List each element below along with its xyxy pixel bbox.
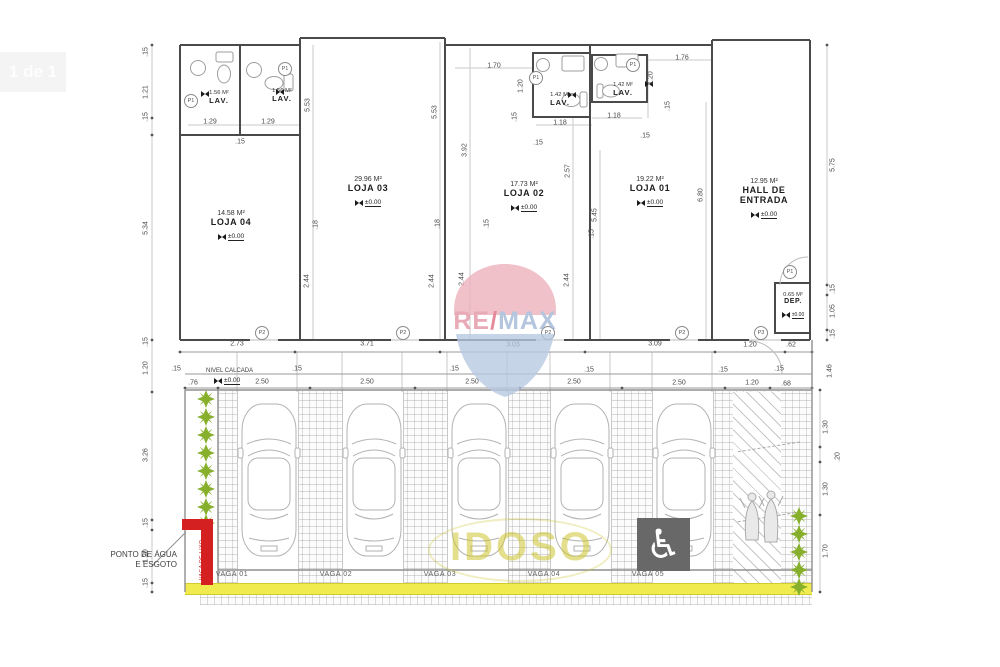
- room-label-hall: 12.95 M² HALL DE ENTRADA ±0.00: [709, 178, 819, 223]
- dim: 1.20: [648, 71, 655, 85]
- dim: 1.18: [607, 113, 621, 120]
- dim: .15: [143, 578, 150, 588]
- dim: .18: [435, 219, 442, 229]
- dim: .15: [143, 337, 150, 347]
- room-name: DEP.: [773, 298, 813, 305]
- room-label-loja01: 19.22 M² LOJA 01 ±0.00: [595, 176, 705, 211]
- dim: 1.70: [487, 63, 501, 70]
- dim: 2.50: [255, 379, 269, 386]
- dim: 2.50: [360, 379, 374, 386]
- vaga-label: VAGA 03: [424, 571, 456, 578]
- room-area: 12.95 M²: [709, 178, 819, 185]
- dim: 1.20: [143, 361, 150, 375]
- lav-name: LAV.: [530, 98, 590, 107]
- room-name: LOJA 02: [469, 188, 579, 198]
- dim: .15: [533, 140, 543, 147]
- dim: .15: [718, 367, 728, 374]
- level-marker-icon: [214, 378, 222, 384]
- level-value: ±0.00: [792, 312, 804, 319]
- level-value: ±0.00: [228, 233, 244, 241]
- dim: .20: [835, 452, 842, 462]
- dim: 1.30: [823, 420, 830, 434]
- dim: .15: [584, 367, 594, 374]
- dim: 1.30: [823, 482, 830, 496]
- dim: 1.70: [823, 544, 830, 558]
- idoso-watermark: IDOSO: [450, 525, 594, 570]
- dim: 1.76: [675, 55, 689, 62]
- lav-name: LAV.: [189, 96, 249, 105]
- dim: 1.05: [830, 304, 837, 318]
- dim: 1.20: [745, 380, 759, 387]
- dim: .15: [774, 366, 784, 373]
- dim: 1.29: [203, 119, 217, 126]
- dim: .15: [171, 366, 181, 373]
- water-sewage-note: PONTO DE ÁGUA E ESGOTO: [85, 550, 177, 570]
- lav-name: LAV.: [252, 94, 312, 103]
- dim: 1.46: [827, 364, 834, 378]
- dim: .15: [292, 366, 302, 373]
- room-name: LOJA 04: [176, 217, 286, 227]
- sidewalk-level-label: NIVEL CALCADA: [206, 368, 253, 374]
- door-tag-p2: P2: [396, 326, 410, 340]
- dim: 5.75: [830, 158, 837, 172]
- room-name: LOJA 03: [313, 183, 423, 193]
- dim: .15: [143, 112, 150, 122]
- dim: 5.53: [432, 105, 439, 119]
- dim: .18: [313, 220, 320, 230]
- level-value: ±0.00: [365, 199, 381, 207]
- room-area: 14.58 M²: [176, 210, 286, 217]
- door-tag-p2: P2: [255, 326, 269, 340]
- lav-label: 1.56 M² LAV.: [189, 90, 249, 105]
- dim: .15: [143, 47, 150, 57]
- dim: 5.45: [592, 208, 599, 222]
- room-area: 29.96 M²: [313, 176, 423, 183]
- door-tag-p1: P1: [626, 58, 640, 72]
- room-label-loja03: 29.96 M² LOJA 03 ±0.00: [313, 176, 423, 211]
- remax-text-re: RE: [453, 307, 490, 335]
- dim: 3.92: [462, 143, 469, 157]
- level-marker-icon: [782, 312, 790, 318]
- door-tag-p1: P1: [184, 94, 198, 108]
- level-marker-icon: [355, 200, 363, 206]
- door-tag-p2: P2: [675, 326, 689, 340]
- dim: 1.20: [518, 79, 525, 93]
- level-marker-icon: [568, 92, 576, 98]
- dim: .76: [188, 380, 198, 387]
- remax-text-max: MAX: [498, 307, 557, 335]
- dim: .68: [781, 381, 791, 388]
- level-value: ±0.00: [647, 199, 663, 207]
- floor-plan-page: 1 de 1: [0, 0, 1000, 667]
- room-name: LOJA 01: [595, 183, 705, 193]
- lav-label: 1.42 M² LAV.: [530, 92, 590, 107]
- level-marker-icon: [637, 200, 645, 206]
- level-marker-icon: [201, 91, 209, 97]
- dim: .15: [665, 101, 672, 111]
- room-label-loja04: 14.58 M² LOJA 04 ±0.00: [176, 210, 286, 245]
- dim: .15: [830, 284, 837, 294]
- room-label-dep: 0.65 M² DEP. ±0.00: [773, 292, 813, 323]
- dim: 5.53: [305, 98, 312, 112]
- lav-name: LAV.: [593, 88, 653, 97]
- dim: 2.73: [230, 341, 244, 348]
- sidewalk-level-value: ±0.00: [214, 377, 240, 385]
- dim: .15: [640, 133, 650, 140]
- dim: .15: [143, 518, 150, 528]
- door-tag-p3: P3: [754, 326, 768, 340]
- door-tag-p1: P1: [783, 265, 797, 279]
- remax-balloon-watermark: RE/MAX: [440, 258, 570, 398]
- dim: .15: [235, 139, 245, 146]
- dim: .15: [589, 229, 596, 239]
- door-tag-p1: P1: [529, 71, 543, 85]
- dim: 2.44: [304, 274, 311, 288]
- level-marker-icon: [276, 89, 284, 95]
- lav-label: 1.42 M² LAV.: [593, 82, 653, 97]
- dim: 3.71: [360, 341, 374, 348]
- wheelchair-icon: ♿: [646, 522, 682, 568]
- dim: 2.57: [565, 164, 572, 178]
- dim: .15: [484, 219, 491, 229]
- level-marker-icon: [751, 212, 759, 218]
- dim: 3.09: [648, 341, 662, 348]
- level-value: ±0.00: [521, 204, 537, 212]
- dim: 1.18: [553, 120, 567, 127]
- level-value: ±0.00: [761, 211, 777, 219]
- dim: .15: [830, 329, 837, 339]
- dim: 3.26: [143, 448, 150, 462]
- room-area: 17.73 M²: [469, 181, 579, 188]
- svg-text:RE/MAX: RE/MAX: [453, 307, 556, 335]
- dim: .15: [512, 112, 519, 122]
- dim: 5.34: [143, 221, 150, 235]
- vaga-label: VAGA 02: [320, 571, 352, 578]
- room-label-loja02: 17.73 M² LOJA 02 ±0.00: [469, 181, 579, 216]
- level-marker-icon: [218, 234, 226, 240]
- remax-text-slash: /: [490, 307, 498, 335]
- water-sewage-marking: [201, 519, 213, 585]
- handicap-parking-sign: ♿: [637, 518, 690, 571]
- dim: 6.80: [698, 188, 705, 202]
- dim: 1.29: [261, 119, 275, 126]
- dim: 1.20: [743, 342, 757, 349]
- vaga-label: VAGA 01: [216, 571, 248, 578]
- dim: 1.21: [143, 85, 150, 99]
- dim: 2.44: [429, 274, 436, 288]
- dim: .62: [786, 342, 796, 349]
- room-name: HALL DE: [709, 185, 819, 195]
- room-area: 19.22 M²: [595, 176, 705, 183]
- level-marker-icon: [511, 205, 519, 211]
- dim: 2.50: [672, 380, 686, 387]
- vaga-label: VAGA 05: [632, 571, 664, 578]
- room-name: ENTRADA: [709, 195, 819, 205]
- door-tag-p1: P1: [278, 62, 292, 76]
